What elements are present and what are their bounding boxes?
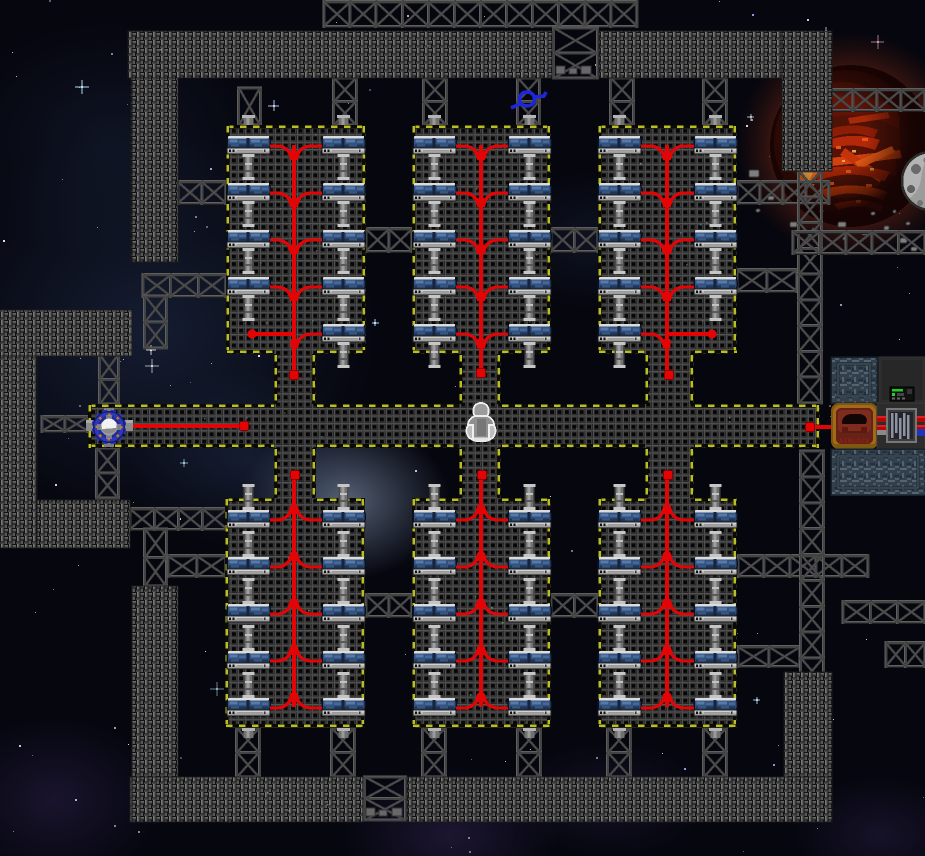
svg-text:AIRLOCK: AIRLOCK (839, 438, 870, 445)
